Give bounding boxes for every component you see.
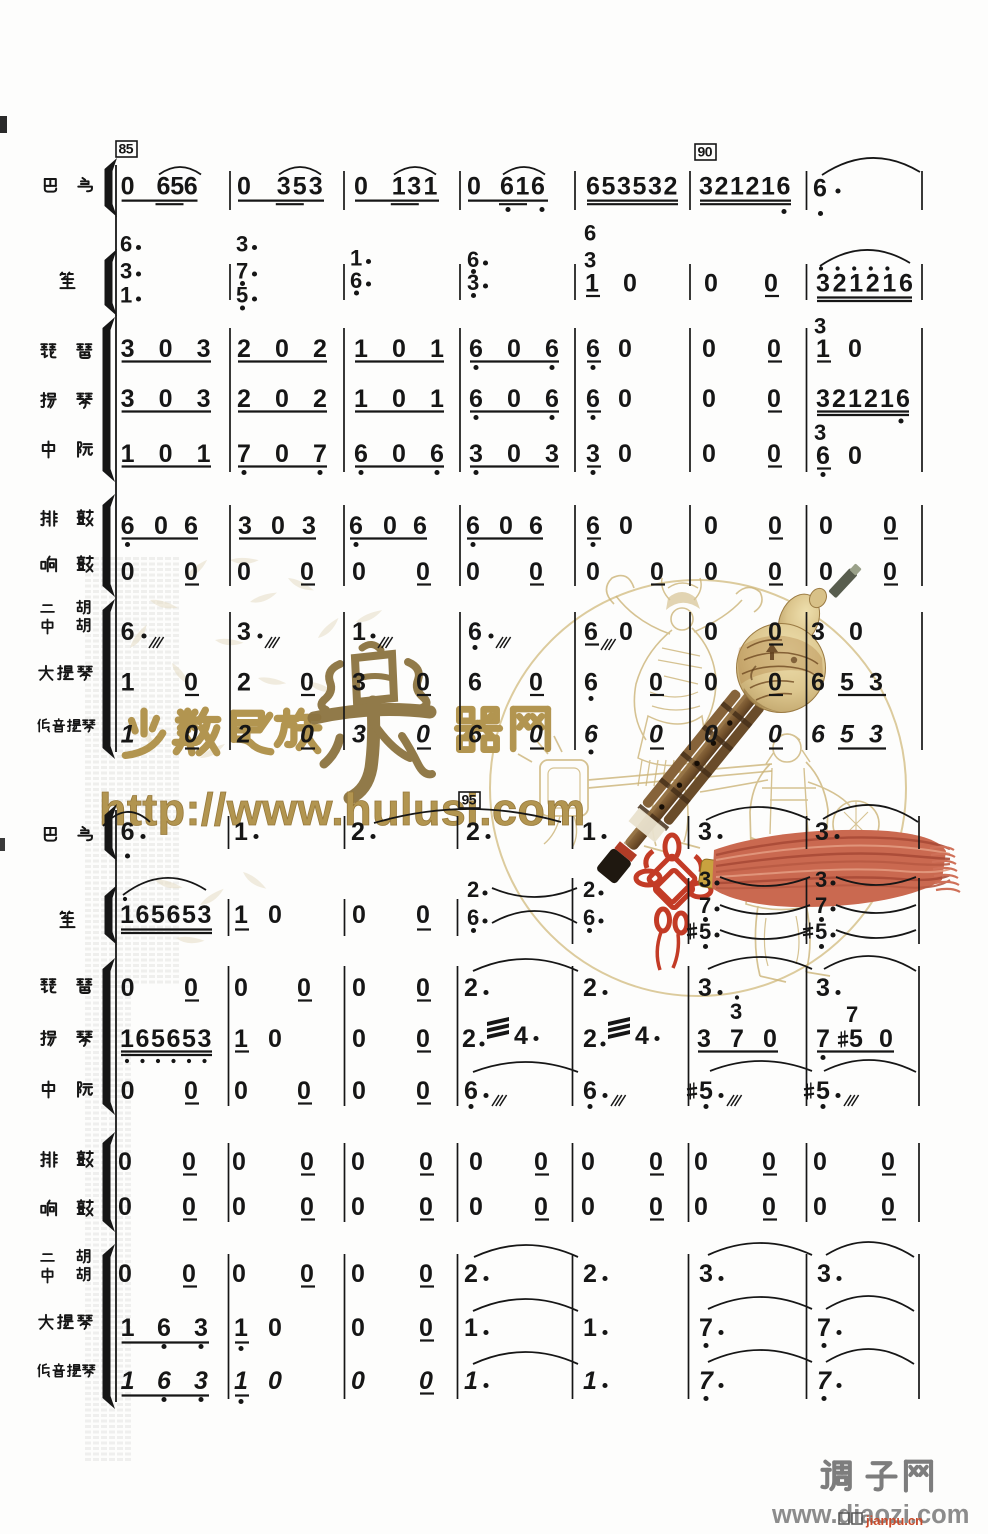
svg-text:0: 0 — [392, 440, 406, 468]
svg-text:1: 1 — [582, 818, 596, 846]
svg-text:0: 0 — [159, 335, 173, 363]
svg-text:6: 6 — [167, 901, 181, 929]
svg-text:0: 0 — [121, 558, 135, 586]
svg-text:1: 1 — [430, 385, 444, 413]
svg-text:0: 0 — [154, 512, 168, 540]
svg-text:2: 2 — [832, 385, 846, 413]
svg-text:6: 6 — [121, 818, 135, 846]
svg-text:3: 3 — [699, 173, 713, 201]
svg-text:3: 3 — [811, 618, 825, 646]
svg-text:1: 1 — [121, 721, 135, 749]
svg-text:3: 3 — [121, 335, 135, 363]
svg-text:6: 6 — [583, 1077, 597, 1105]
svg-text:0: 0 — [232, 1260, 246, 1288]
svg-text:0: 0 — [848, 442, 862, 470]
svg-text:1: 1 — [424, 173, 438, 201]
svg-text:0: 0 — [275, 440, 289, 468]
svg-text:0: 0 — [649, 721, 663, 749]
svg-text:0: 0 — [618, 335, 632, 363]
svg-text:3: 3 — [697, 1025, 711, 1053]
svg-text:0: 0 — [392, 335, 406, 363]
svg-text:3: 3 — [816, 385, 830, 413]
svg-text:0: 0 — [237, 558, 251, 586]
svg-text:2: 2 — [583, 1025, 597, 1053]
svg-text:0: 0 — [467, 173, 481, 201]
svg-text:7: 7 — [817, 1314, 831, 1342]
svg-text:5: 5 — [182, 1025, 196, 1053]
svg-text:3: 3 — [238, 512, 252, 540]
svg-text:0: 0 — [768, 721, 782, 749]
svg-text:6: 6 — [430, 440, 444, 468]
svg-text:0: 0 — [352, 901, 366, 929]
svg-text:6: 6 — [349, 512, 363, 540]
svg-text:0: 0 — [813, 1193, 827, 1221]
svg-text:0: 0 — [767, 440, 781, 468]
svg-text:0: 0 — [275, 335, 289, 363]
svg-text:0: 0 — [419, 1193, 433, 1221]
svg-text:6: 6 — [467, 905, 479, 930]
svg-text:0: 0 — [499, 512, 513, 540]
svg-text:7: 7 — [846, 1002, 858, 1027]
svg-text:0: 0 — [881, 1148, 895, 1176]
svg-text:2: 2 — [464, 1260, 478, 1288]
svg-text:2: 2 — [237, 669, 251, 697]
svg-text:0: 0 — [768, 558, 782, 586]
svg-text:1: 1 — [392, 173, 406, 201]
svg-text:2: 2 — [464, 974, 478, 1002]
svg-text:0: 0 — [184, 721, 198, 749]
svg-text:0: 0 — [702, 440, 716, 468]
svg-text:0: 0 — [764, 270, 778, 298]
svg-text:6: 6 — [350, 268, 362, 293]
svg-text:6: 6 — [468, 618, 482, 646]
svg-text:0: 0 — [762, 1148, 776, 1176]
svg-text:3: 3 — [869, 721, 883, 749]
svg-text:4: 4 — [514, 1022, 528, 1050]
svg-text:0: 0 — [354, 173, 368, 201]
svg-text:0: 0 — [469, 1148, 483, 1176]
svg-text:0: 0 — [351, 1260, 365, 1288]
svg-text:0: 0 — [704, 721, 718, 749]
svg-text:7: 7 — [817, 1367, 832, 1395]
svg-text:2: 2 — [462, 1025, 476, 1053]
svg-text:6: 6 — [167, 1025, 181, 1053]
svg-text:0: 0 — [268, 901, 282, 929]
svg-text:0: 0 — [268, 1367, 282, 1395]
svg-text:0: 0 — [184, 1077, 198, 1105]
svg-text:1: 1 — [583, 1314, 597, 1342]
svg-text:6: 6 — [899, 270, 913, 298]
svg-text:0: 0 — [767, 335, 781, 363]
svg-text:3: 3 — [816, 270, 830, 298]
svg-text:0: 0 — [118, 1148, 132, 1176]
svg-text:0: 0 — [619, 512, 633, 540]
svg-text:1: 1 — [121, 1367, 135, 1395]
svg-text:3: 3 — [698, 818, 712, 846]
svg-text:7: 7 — [237, 440, 251, 468]
svg-text:5: 5 — [151, 1025, 165, 1053]
svg-text:0: 0 — [237, 173, 251, 201]
svg-text:0: 0 — [649, 1193, 663, 1221]
svg-text:0: 0 — [184, 669, 198, 697]
svg-text:0: 0 — [879, 1025, 893, 1053]
svg-text:0: 0 — [650, 558, 664, 586]
svg-text:6: 6 — [583, 905, 595, 930]
svg-text:0: 0 — [618, 440, 632, 468]
svg-text:1: 1 — [583, 1367, 597, 1395]
svg-text:0: 0 — [351, 1314, 365, 1342]
svg-text:2: 2 — [583, 974, 597, 1002]
svg-text:6: 6 — [121, 618, 135, 646]
svg-text:1: 1 — [121, 1314, 135, 1342]
svg-text:1: 1 — [120, 1025, 134, 1053]
svg-text:0: 0 — [419, 1314, 433, 1342]
svg-text:0: 0 — [268, 1025, 282, 1053]
svg-text:0: 0 — [416, 974, 430, 1002]
svg-text:0: 0 — [234, 1077, 248, 1105]
svg-text:5: 5 — [293, 173, 307, 201]
svg-text:0: 0 — [416, 721, 430, 749]
svg-text:2: 2 — [664, 173, 678, 201]
svg-text:5: 5 — [699, 919, 711, 944]
svg-text:1: 1 — [120, 901, 134, 929]
svg-text:0: 0 — [623, 270, 637, 298]
svg-text:2: 2 — [236, 721, 251, 749]
svg-text:0: 0 — [300, 1148, 314, 1176]
svg-text:1: 1 — [354, 335, 368, 363]
svg-text:6: 6 — [136, 901, 150, 929]
svg-text:3: 3 — [816, 974, 830, 1002]
svg-text:0: 0 — [419, 1148, 433, 1176]
svg-text:2: 2 — [351, 818, 365, 846]
svg-text:0: 0 — [581, 1148, 595, 1176]
svg-text:0: 0 — [271, 512, 285, 540]
svg-text:1: 1 — [354, 385, 368, 413]
svg-text:0: 0 — [275, 385, 289, 413]
svg-text:6: 6 — [529, 512, 543, 540]
svg-text:7: 7 — [730, 1025, 744, 1053]
svg-text:0: 0 — [586, 558, 600, 586]
svg-text:3: 3 — [469, 440, 483, 468]
svg-text:6: 6 — [157, 1367, 172, 1395]
svg-text:0: 0 — [694, 1148, 708, 1176]
svg-text:6: 6 — [777, 173, 791, 201]
svg-text:2: 2 — [833, 270, 847, 298]
svg-text:3: 3 — [699, 867, 711, 892]
svg-text:1: 1 — [352, 618, 366, 646]
svg-text:0: 0 — [182, 1260, 196, 1288]
svg-text:0: 0 — [416, 1077, 430, 1105]
svg-text:0: 0 — [534, 1193, 548, 1221]
svg-text:1: 1 — [350, 246, 362, 271]
svg-text:6: 6 — [464, 1077, 478, 1105]
svg-text:0: 0 — [649, 669, 663, 697]
svg-text:7: 7 — [816, 1025, 830, 1053]
svg-text:0: 0 — [118, 1193, 132, 1221]
svg-text:jianpu.cn: jianpu.cn — [865, 1513, 923, 1528]
svg-text:3: 3 — [699, 1260, 713, 1288]
svg-text:0: 0 — [232, 1193, 246, 1221]
svg-text:1: 1 — [234, 1367, 248, 1395]
svg-text:1: 1 — [880, 385, 894, 413]
svg-text:6: 6 — [466, 512, 480, 540]
svg-text:0: 0 — [184, 974, 198, 1002]
svg-text:0: 0 — [881, 1193, 895, 1221]
svg-text:6: 6 — [531, 173, 545, 201]
svg-text:0: 0 — [351, 1148, 365, 1176]
svg-text:95: 95 — [462, 791, 477, 807]
svg-text:3: 3 — [698, 974, 712, 1002]
svg-text:1: 1 — [849, 270, 863, 298]
svg-text:0: 0 — [121, 1077, 135, 1105]
svg-text:0: 0 — [507, 385, 521, 413]
svg-text:0: 0 — [702, 335, 716, 363]
svg-text:6: 6 — [468, 721, 483, 749]
svg-text:1: 1 — [234, 818, 248, 846]
svg-text:6: 6 — [584, 669, 598, 697]
svg-text:0: 0 — [268, 1314, 282, 1342]
svg-text:1: 1 — [761, 173, 775, 201]
svg-text:5: 5 — [151, 901, 165, 929]
svg-text:6: 6 — [184, 173, 198, 201]
svg-text:6: 6 — [811, 721, 826, 749]
svg-text:3: 3 — [617, 173, 631, 201]
svg-text:2: 2 — [864, 385, 878, 413]
svg-text:0: 0 — [232, 1148, 246, 1176]
svg-text:5: 5 — [236, 283, 248, 308]
svg-text:3: 3 — [817, 1260, 831, 1288]
svg-text:6: 6 — [469, 335, 483, 363]
svg-text:0: 0 — [352, 1025, 366, 1053]
svg-text:0: 0 — [768, 669, 782, 697]
svg-text:2: 2 — [313, 335, 327, 363]
svg-text:3: 3 — [197, 335, 211, 363]
svg-text:0: 0 — [416, 901, 430, 929]
svg-text:0: 0 — [768, 618, 782, 646]
svg-text:85: 85 — [119, 140, 134, 156]
svg-text:2: 2 — [866, 270, 880, 298]
svg-text:5: 5 — [849, 1025, 863, 1053]
svg-text:2: 2 — [466, 818, 480, 846]
svg-text:6: 6 — [586, 512, 600, 540]
svg-text:6: 6 — [584, 221, 596, 246]
svg-text:3: 3 — [194, 1367, 208, 1395]
svg-text:1: 1 — [234, 1314, 248, 1342]
svg-text:1: 1 — [234, 1025, 248, 1053]
svg-text:0: 0 — [352, 974, 366, 1002]
svg-text:5: 5 — [699, 1077, 713, 1105]
svg-text:3: 3 — [197, 385, 211, 413]
svg-text:3: 3 — [586, 440, 600, 468]
svg-text:1: 1 — [516, 173, 530, 201]
svg-text:1: 1 — [730, 173, 744, 201]
svg-text:5: 5 — [602, 173, 616, 201]
svg-text:1: 1 — [197, 440, 211, 468]
svg-text:0: 0 — [702, 385, 716, 413]
svg-text:7: 7 — [699, 1367, 714, 1395]
svg-text:1: 1 — [430, 335, 444, 363]
svg-text:0: 0 — [234, 974, 248, 1002]
svg-text:3: 3 — [730, 999, 742, 1024]
svg-text:5: 5 — [840, 669, 854, 697]
svg-text:0: 0 — [352, 558, 366, 586]
svg-text:6: 6 — [121, 512, 135, 540]
svg-text:6: 6 — [500, 173, 514, 201]
svg-text:http://www.hulusi.com: http://www.hulusi.com — [99, 784, 586, 835]
svg-text:0: 0 — [704, 512, 718, 540]
svg-text:4: 4 — [635, 1022, 649, 1050]
svg-text:0: 0 — [704, 618, 718, 646]
svg-text:0: 0 — [416, 669, 430, 697]
svg-text:5: 5 — [816, 1077, 830, 1105]
svg-text:1: 1 — [121, 440, 135, 468]
svg-text:3: 3 — [198, 901, 212, 929]
svg-text:0: 0 — [529, 669, 543, 697]
svg-text:2: 2 — [715, 173, 729, 201]
svg-text:3: 3 — [869, 669, 883, 697]
svg-text:3: 3 — [467, 270, 479, 295]
svg-text:1: 1 — [882, 270, 896, 298]
svg-text:0: 0 — [300, 721, 314, 749]
svg-text:0: 0 — [297, 974, 311, 1002]
svg-text:0: 0 — [883, 512, 897, 540]
svg-text:0: 0 — [529, 558, 543, 586]
svg-text:0: 0 — [352, 1077, 366, 1105]
svg-text:6: 6 — [413, 512, 427, 540]
svg-text:0: 0 — [649, 1148, 663, 1176]
svg-text:1: 1 — [234, 901, 248, 929]
svg-text:3: 3 — [277, 173, 291, 201]
svg-text:7: 7 — [313, 440, 327, 468]
svg-text:3: 3 — [236, 232, 248, 257]
svg-text:5: 5 — [840, 721, 855, 749]
svg-text:5: 5 — [633, 173, 647, 201]
svg-text:0: 0 — [883, 558, 897, 586]
svg-text:2: 2 — [313, 385, 327, 413]
svg-text:6: 6 — [545, 385, 559, 413]
svg-text:7: 7 — [815, 893, 827, 918]
svg-text:6: 6 — [468, 669, 482, 697]
svg-text:0: 0 — [813, 1148, 827, 1176]
svg-text:5: 5 — [182, 901, 196, 929]
svg-text:1: 1 — [120, 283, 132, 308]
svg-text:3: 3 — [194, 1314, 208, 1342]
svg-text:0: 0 — [849, 618, 863, 646]
svg-text:0: 0 — [300, 1260, 314, 1288]
svg-text:0: 0 — [469, 1193, 483, 1221]
svg-text:3: 3 — [121, 385, 135, 413]
svg-text:0: 0 — [182, 1148, 196, 1176]
svg-text:3: 3 — [352, 721, 366, 749]
svg-text:3: 3 — [309, 173, 323, 201]
svg-text:90: 90 — [698, 143, 713, 159]
svg-text:0: 0 — [763, 1025, 777, 1053]
svg-text:6: 6 — [586, 173, 600, 201]
svg-text:6: 6 — [184, 512, 198, 540]
svg-text:6: 6 — [157, 173, 171, 201]
svg-text:1: 1 — [848, 385, 862, 413]
svg-text:0: 0 — [121, 974, 135, 1002]
svg-text:0: 0 — [416, 1025, 430, 1053]
svg-text:1: 1 — [464, 1367, 478, 1395]
svg-text:0: 0 — [819, 558, 833, 586]
svg-text:6: 6 — [354, 440, 368, 468]
svg-text:0: 0 — [159, 385, 173, 413]
svg-text:6: 6 — [811, 669, 825, 697]
svg-text:0: 0 — [297, 1077, 311, 1105]
svg-text:6: 6 — [586, 335, 600, 363]
svg-text:1: 1 — [464, 1314, 478, 1342]
svg-text:0: 0 — [351, 1193, 365, 1221]
svg-text:3: 3 — [198, 1025, 212, 1053]
svg-text:6: 6 — [469, 385, 483, 413]
svg-text:3: 3 — [545, 440, 559, 468]
svg-text:7: 7 — [236, 258, 248, 283]
svg-text:5: 5 — [815, 919, 827, 944]
svg-text:6: 6 — [584, 618, 598, 646]
svg-text:6: 6 — [120, 232, 132, 257]
svg-text:3: 3 — [648, 173, 662, 201]
svg-text:1: 1 — [585, 270, 599, 298]
svg-text:0: 0 — [184, 558, 198, 586]
svg-text:2: 2 — [583, 1260, 597, 1288]
svg-text:0: 0 — [300, 669, 314, 697]
svg-text:0: 0 — [416, 558, 430, 586]
svg-text:0: 0 — [419, 1367, 433, 1395]
svg-text:3: 3 — [352, 669, 366, 697]
svg-text:0: 0 — [159, 440, 173, 468]
svg-text:6: 6 — [157, 1314, 171, 1342]
svg-text:0: 0 — [848, 335, 862, 363]
svg-text:0: 0 — [618, 385, 632, 413]
svg-text:0: 0 — [619, 618, 633, 646]
svg-text:0: 0 — [768, 512, 782, 540]
svg-text:5: 5 — [170, 173, 184, 201]
svg-text:0: 0 — [300, 1193, 314, 1221]
svg-text:0: 0 — [704, 558, 718, 586]
svg-text:0: 0 — [392, 385, 406, 413]
svg-text:0: 0 — [762, 1193, 776, 1221]
svg-text:0: 0 — [819, 512, 833, 540]
svg-text:6: 6 — [467, 247, 479, 272]
svg-text:3: 3 — [815, 867, 827, 892]
svg-text:6: 6 — [545, 335, 559, 363]
svg-text:1: 1 — [816, 335, 830, 363]
svg-text:6: 6 — [584, 721, 599, 749]
svg-text:2: 2 — [746, 173, 760, 201]
svg-text:2: 2 — [583, 877, 595, 902]
svg-text:0: 0 — [534, 1148, 548, 1176]
svg-text:0: 0 — [704, 669, 718, 697]
svg-text:0: 0 — [300, 558, 314, 586]
svg-text:0: 0 — [529, 721, 543, 749]
svg-text:3: 3 — [237, 618, 251, 646]
svg-text:7: 7 — [699, 1314, 713, 1342]
svg-text:0: 0 — [466, 558, 480, 586]
svg-text:6: 6 — [896, 385, 910, 413]
svg-text:0: 0 — [118, 1260, 132, 1288]
svg-text:6: 6 — [136, 1025, 150, 1053]
svg-text:0: 0 — [351, 1367, 365, 1395]
svg-text:6: 6 — [586, 385, 600, 413]
svg-text:3: 3 — [302, 512, 316, 540]
svg-text:0: 0 — [121, 173, 135, 201]
svg-text:2: 2 — [237, 335, 251, 363]
svg-text:0: 0 — [383, 512, 397, 540]
svg-text:0: 0 — [182, 1193, 196, 1221]
svg-text:3: 3 — [407, 173, 421, 201]
svg-text:3: 3 — [815, 818, 829, 846]
